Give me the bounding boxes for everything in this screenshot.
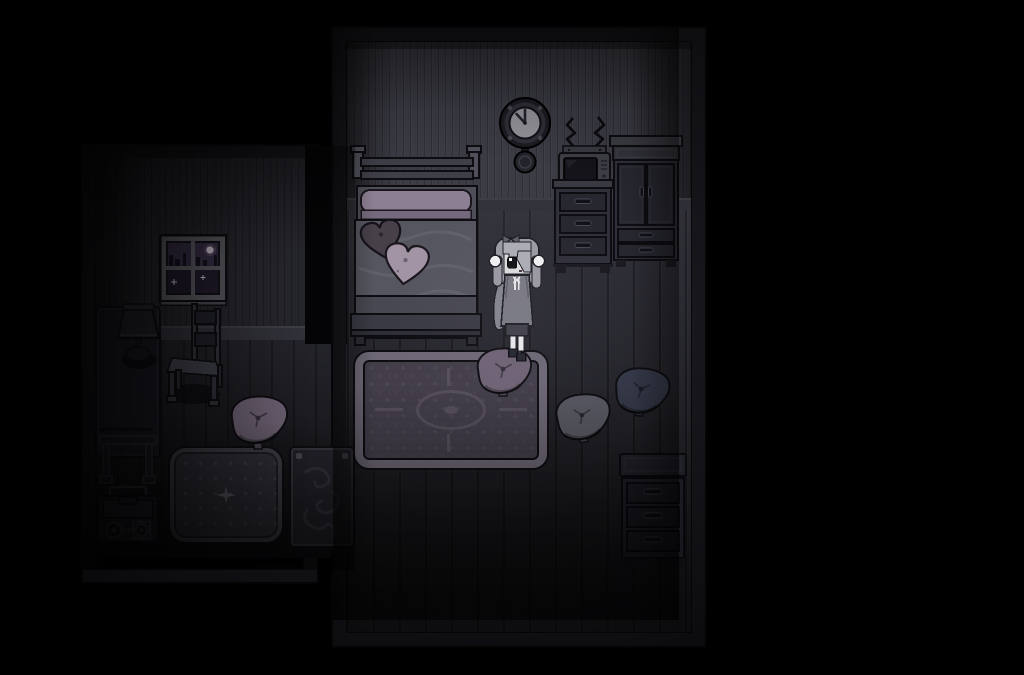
dress [501,275,533,326]
rug-motif-line [447,368,450,386]
side-table-shelf [99,428,153,431]
skirt [506,324,529,336]
rug-motif-line [447,434,450,452]
clock-pendulum [515,152,536,173]
drawer [560,193,606,211]
wardrobe-door [647,164,674,225]
wooden-chair [164,302,226,406]
drawer [627,531,679,551]
drawer [618,229,674,242]
rug-motif-line [499,408,527,411]
drawer [560,215,606,233]
drawer [560,237,606,255]
small-dresser [616,452,690,570]
table-lamp [110,302,166,388]
dotted-mat [170,448,282,542]
drawer [618,244,674,257]
rug-motif-line [375,408,403,411]
shoe [517,353,526,361]
window [158,233,228,307]
wardrobe [608,134,684,270]
bed-footboard [351,314,481,345]
floor-cushion-purple-left [226,392,292,452]
folding-rack [94,434,162,490]
tv-antenna-icon [567,117,604,147]
floor-cushion-gray [549,388,617,446]
boombox [92,484,164,546]
hair-accessory [489,255,501,267]
game-viewport[interactable] [0,0,1024,675]
wardrobe-door [618,164,645,225]
mouth [519,270,522,272]
window-pane [195,270,218,293]
leg [518,336,524,351]
mat-sparkle-icon [214,484,238,506]
floor-cushion-navy [607,361,677,421]
tapestry-rug [291,448,353,546]
bed-pillow [361,190,471,212]
tapestry-swirl-pattern [295,458,349,542]
player-character [486,232,548,366]
hair-accessory [533,255,545,267]
drawer [627,483,679,503]
heart-pillow-light [379,237,433,293]
nightstand [551,178,615,274]
drawer [627,507,679,527]
